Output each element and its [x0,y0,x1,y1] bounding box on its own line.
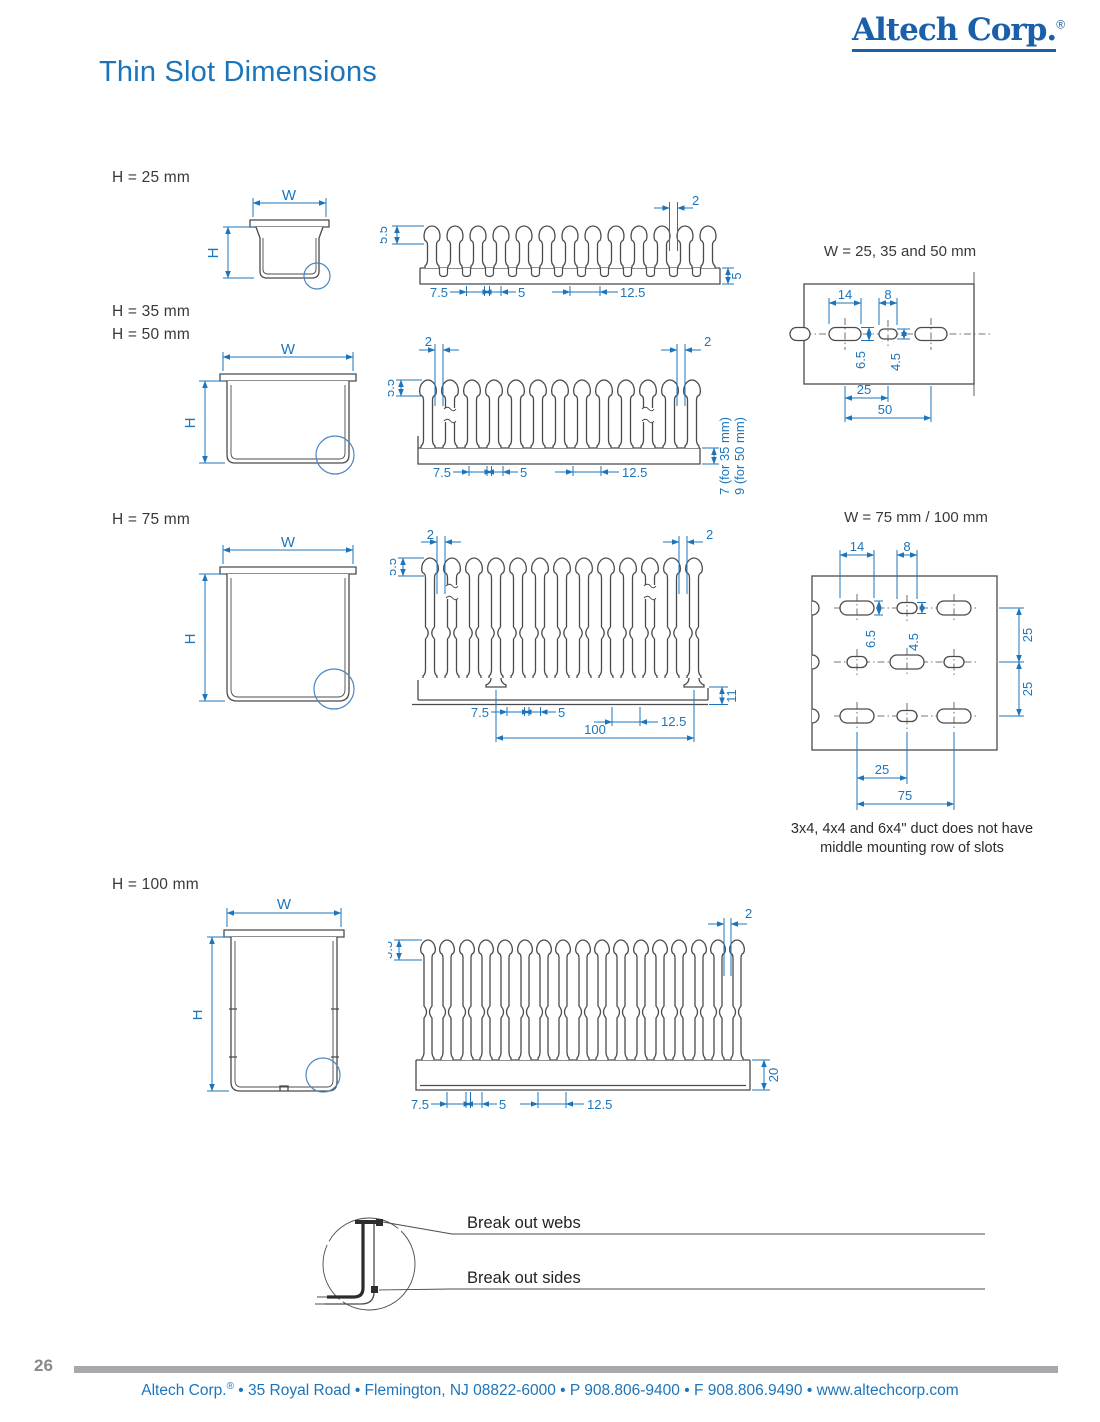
dim-height-label: H [183,418,199,429]
section-label-h25: H = 25 mm [112,169,190,187]
dim-100: 100 [584,722,606,737]
breakout-label-sides: Break out sides [467,1269,581,1287]
section-label-h100: H = 100 mm [112,876,199,894]
duct-outline [250,220,329,278]
dim-height-label: H [193,1010,206,1021]
dim-50: 50 [878,402,892,417]
dim-7-5: 7.5 [430,285,448,300]
mount-large-title: W = 75 mm / 100 mm [776,509,1056,526]
mounting-note-line2: middle mounting row of slots [772,839,1052,858]
dim-5-5: 5.5 [380,226,390,244]
dim-25: 25 [857,382,871,397]
dim-14: 14 [838,287,852,302]
dim-2-right: 2 [704,336,711,349]
dim-8: 8 [903,539,910,554]
footer-contact: • 35 Royal Road • Flemington, NJ 08822-6… [234,1382,959,1399]
cross-section-h25-diagram: W H [193,186,368,301]
slot-profile-h25-diagram: 5.5 2 5 7.5 5 12.5 [380,196,752,308]
dim-5: 5 [558,705,565,720]
dim-2-left: 2 [427,530,434,542]
dim-5: 5 [518,285,525,300]
dim-5: 5 [499,1097,506,1112]
catalog-page: Altech Corp.® Thin Slot Dimensions H = 2… [0,0,1100,1422]
dim-12-5: 12.5 [620,285,645,300]
breakout-label-webs: Break out webs [467,1214,581,1232]
dim-14: 14 [850,539,864,554]
slot-profile-h100-diagram: 5.5 2 20 7.5 5 12.5 [388,896,788,1131]
slot-teeth [421,940,745,1060]
dim-7-5: 7.5 [433,465,451,480]
dim-height-label: H [205,248,222,259]
dim-4-5: 4.5 [906,633,921,651]
cross-section-h35-50-diagram: W H [183,338,368,483]
dim-height-label: H [183,634,199,645]
slot-teeth [424,226,716,277]
registered-mark: ® [1056,18,1064,32]
dim-25-row2: 25 [1020,682,1035,696]
page-title: Thin Slot Dimensions [99,56,377,89]
footer-company: Altech Corp. [141,1382,226,1399]
dim-width-label: W [281,534,296,551]
dim-2: 2 [745,906,752,921]
dim-width-label: W [281,341,296,358]
anchor-foot [684,678,704,687]
footer-rule [74,1366,1058,1373]
slot-profile-h35-50-diagram: 5.5 2 2 7 (for 35 mm) 9 (for 50 mm) 7.5 … [388,336,760,508]
section-label-h35: H = 35 mm [112,303,190,321]
dim-6-5: 6.5 [853,351,868,369]
duct-outline [224,930,344,1091]
dim-width-label: W [282,187,297,204]
dim-5: 5 [520,465,527,480]
dim-11: 11 [724,689,739,703]
dim-width-label: W [277,896,292,913]
dim-25-col: 25 [875,762,889,777]
dim-5-5: 5.5 [388,941,395,959]
dim-2-right: 2 [706,530,713,542]
dim-75-col: 75 [898,788,912,803]
duct-corner-detail [315,1219,383,1304]
edge-slot [790,328,810,341]
section-label-h75: H = 75 mm [112,511,190,529]
dim-5-base: 5 [729,272,744,279]
breakout-diagram: Break out webs Break out sides [297,1196,1007,1331]
dim-6-5: 6.5 [863,630,878,648]
dim-7-5: 7.5 [471,705,489,720]
dim-25-row1: 25 [1020,628,1035,642]
slot-teeth [420,380,701,448]
dim-7-5: 7.5 [411,1097,429,1112]
duct-outline [220,374,356,463]
dim-12-5: 12.5 [622,465,647,480]
footer-address: Altech Corp.® • 35 Royal Road • Flemingt… [0,1381,1100,1400]
company-logo-text: Altech Corp. [852,12,1056,52]
dim-5-5: 5.5 [388,379,397,397]
dim-20: 20 [766,1068,781,1082]
footer-registered-mark: ® [227,1381,234,1392]
slot-profile-h75-diagram: 5.5 2 2 11 7.5 5 12.5 100 [390,530,770,770]
dim-12-5: 12.5 [587,1097,612,1112]
dim-4-5: 4.5 [888,353,903,371]
dim-2-left: 2 [425,336,432,349]
anchor-foot [486,678,506,687]
dim-8: 8 [884,287,891,302]
mounting-note: 3x4, 4x4 and 6x4" duct does not have mid… [772,820,1052,858]
page-number: 26 [34,1356,53,1376]
mount-small-title: W = 25, 35 and 50 mm [790,243,1010,260]
mounting-plate-small-diagram: 14 8 6.5 4.5 25 50 [782,262,1012,432]
cross-section-h75-diagram: W H [183,533,368,713]
dim-base-h35: 7 (for 35 mm) [717,417,732,495]
mounting-note-line1: 3x4, 4x4 and 6x4" duct does not have [772,820,1052,839]
dim-12-5: 12.5 [661,714,686,729]
dim-2: 2 [692,196,699,208]
mounting-plate-large-diagram: 14 8 6.5 4.5 25 25 25 75 [782,528,1044,828]
dim-5-5: 5.5 [390,558,399,576]
dim-base-h50: 9 (for 50 mm) [732,417,747,495]
slot-teeth [422,558,704,687]
duct-outline [220,567,356,701]
company-logo: Altech Corp.® [852,12,1064,52]
section-label-h50: H = 50 mm [112,326,190,344]
cross-section-h100-diagram: W H [193,891,373,1106]
